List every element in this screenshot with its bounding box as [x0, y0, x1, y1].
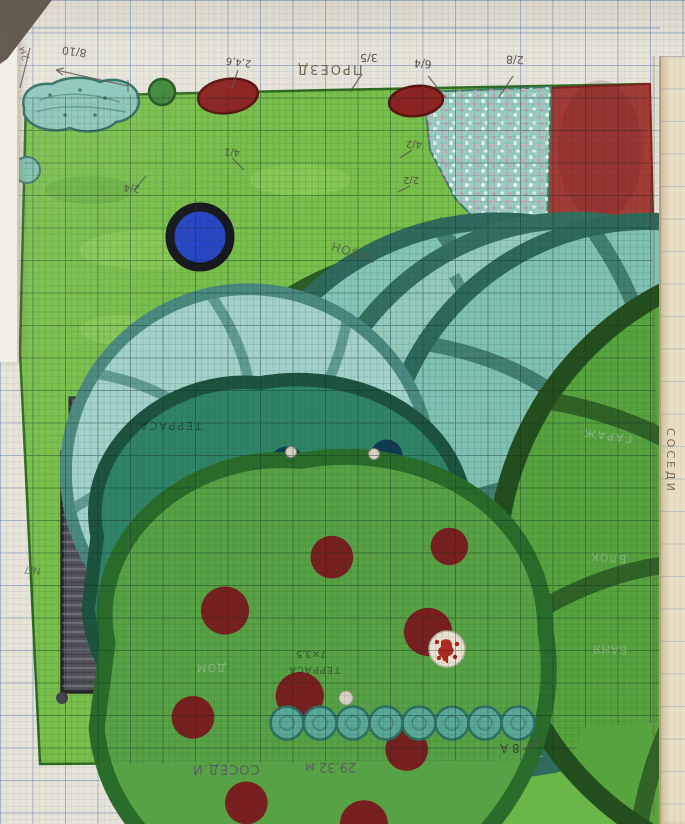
frac-4-1-label: 4/1 — [224, 146, 241, 157]
photo-of-plan: 2м 8/10 2,4,6 ПРОЕЗД 3/5 6/4 2/8 2/4 4/1… — [0, 0, 685, 824]
frac-2-2-label: 2/2 — [403, 174, 419, 184]
road-label: ПРОЕЗД — [296, 62, 363, 75]
hedge-label: 8 А — [500, 742, 520, 754]
frac-6-4-label: 6/4 — [414, 57, 432, 69]
note-left-label: №7 — [24, 563, 42, 574]
frac-3-5-label: 3/5 — [360, 52, 378, 63]
grid-overlay — [20, 84, 662, 764]
frac-4-2-label: 4/2 — [406, 138, 422, 149]
frac-2-8-label: 2/8 — [506, 54, 524, 66]
terrace-upper-label: ТЕРРАСА — [138, 420, 202, 431]
block-label: БЛОК — [590, 551, 627, 565]
plants-246-label: 2,4,6 — [225, 54, 251, 67]
neighbors-right-label: СОСЕДИ — [665, 428, 676, 494]
frac-8-10-label: 8/10 — [61, 44, 87, 58]
terrace-dim-label: 7×3,5 — [296, 648, 327, 658]
neighbors-bottom-label: СОСЕД.И — [192, 762, 260, 775]
house-label: ДОМ — [196, 662, 226, 673]
bottom-dim-label: 29,32 м — [305, 760, 356, 773]
banya-label: БАНЯ — [592, 643, 627, 655]
sheet-crease — [651, 56, 655, 816]
frac-2-4-label: 2/4 — [124, 181, 141, 192]
terrace-lower-label: ТЕРРАСА — [288, 664, 340, 674]
plan-drawing — [0, 0, 685, 824]
